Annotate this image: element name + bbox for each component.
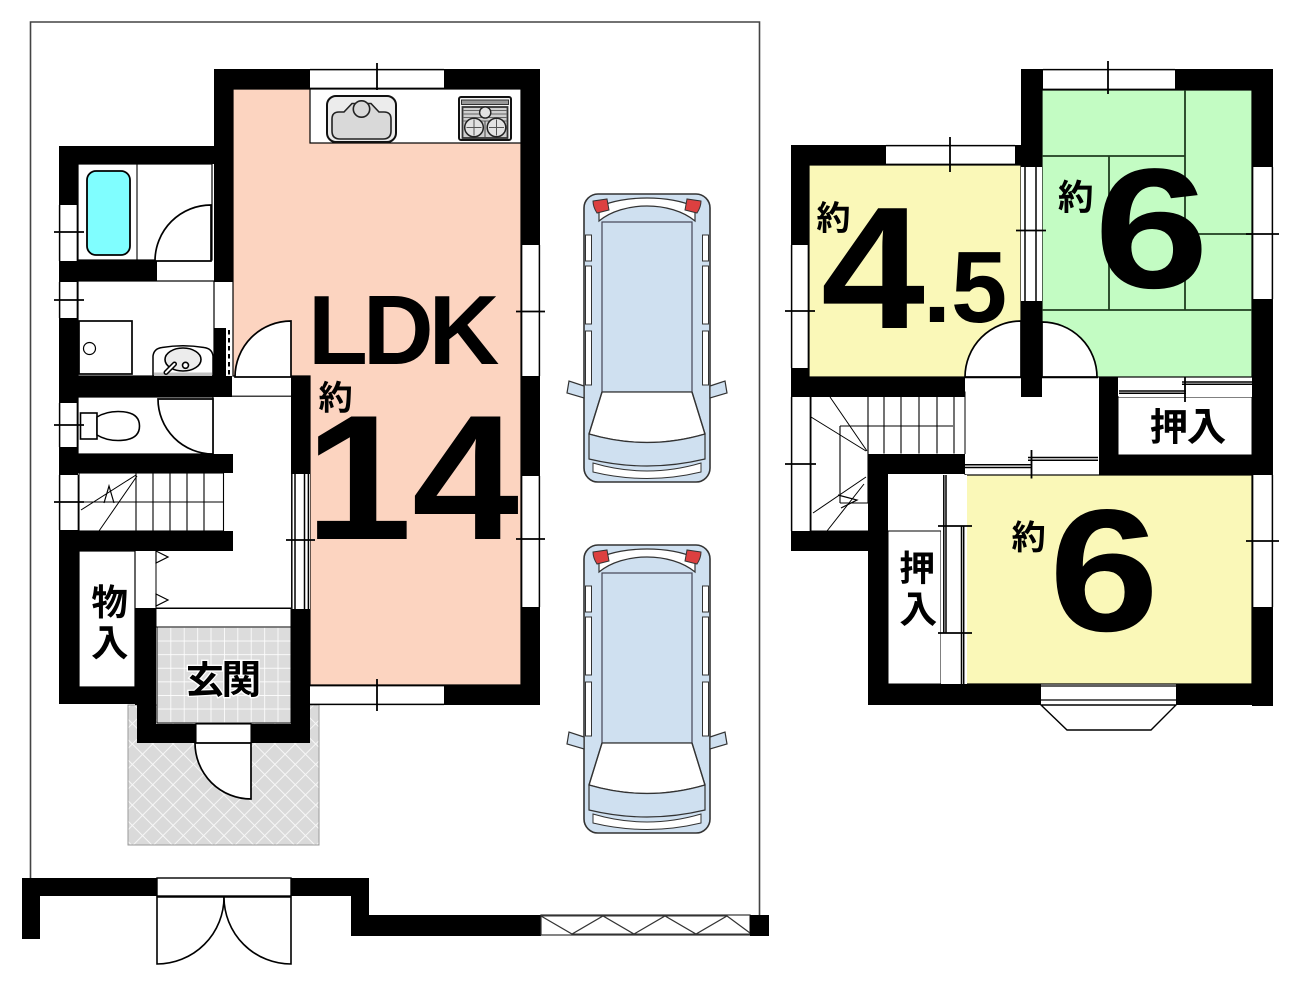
svg-text:6: 6	[1049, 473, 1159, 668]
svg-text:14: 14	[305, 378, 519, 577]
svg-text:6: 6	[1094, 134, 1209, 325]
svg-text:LDK: LDK	[308, 275, 499, 385]
svg-text:4: 4	[821, 170, 925, 365]
